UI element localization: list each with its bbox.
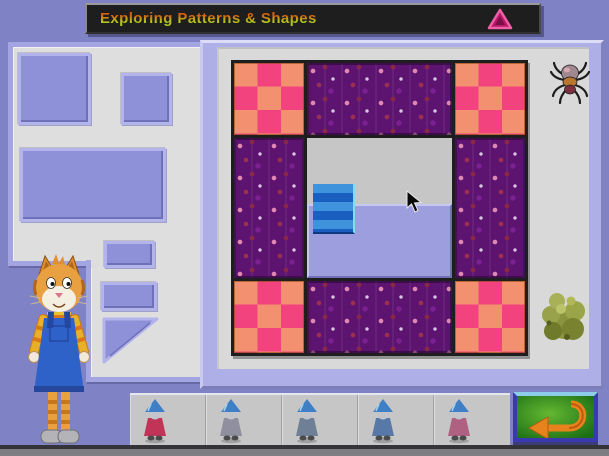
quilt-cell-floral [307, 281, 452, 353]
mouse-option-button-5[interactable] [434, 395, 510, 447]
mouse-icon [294, 398, 320, 444]
pink-triangle-icon [487, 7, 513, 31]
floor-strip [0, 445, 609, 456]
tray-shape-square-small[interactable] [121, 73, 172, 125]
game-screen: { "window": { "title": "Exploring Patter… [0, 0, 609, 456]
tray-shape-right-triangle[interactable] [100, 316, 162, 366]
mouse-option-button-2[interactable] [206, 395, 282, 447]
quilt-cell-floral [234, 138, 304, 278]
cat-guide-character[interactable] [18, 252, 98, 448]
bush-icon [537, 285, 591, 353]
placed-piece-blue-striped-square[interactable] [313, 184, 355, 234]
quilt-grid [231, 60, 528, 356]
tray-shape-rectangle-large[interactable] [20, 148, 166, 222]
quilt-cell-checkered [455, 281, 525, 353]
quilt-cell-floral [455, 138, 525, 278]
tray-shape-rectangle-small-bottom[interactable] [101, 282, 157, 311]
quilt-cell-checkered [234, 63, 304, 135]
mouse-icon [218, 398, 244, 444]
cursor-arrow [405, 190, 423, 214]
return-arrow-icon [517, 396, 594, 438]
mouse-icon [446, 398, 472, 444]
mouse-option-button-1[interactable] [130, 395, 206, 447]
page-title: Exploring Patterns & Shapes [100, 10, 317, 27]
tray-shape-square-large[interactable] [18, 53, 91, 125]
mouse-icon [142, 398, 168, 444]
mouse-option-button-3[interactable] [282, 395, 358, 447]
quilt-workspace-cell[interactable] [307, 138, 452, 278]
quilt-cell-floral [307, 63, 452, 135]
title-bar: Exploring Patterns & Shapes [85, 3, 541, 34]
quilt-cell-checkered [234, 281, 304, 353]
mouse-option-strip [130, 393, 510, 447]
mouse-icon [370, 398, 396, 444]
tray-shape-rectangle-small-top[interactable] [104, 241, 155, 268]
mouse-option-button-4[interactable] [358, 395, 434, 447]
back-button[interactable] [513, 392, 598, 442]
spider-icon [550, 60, 590, 110]
quilt-cell-checkered [455, 63, 525, 135]
